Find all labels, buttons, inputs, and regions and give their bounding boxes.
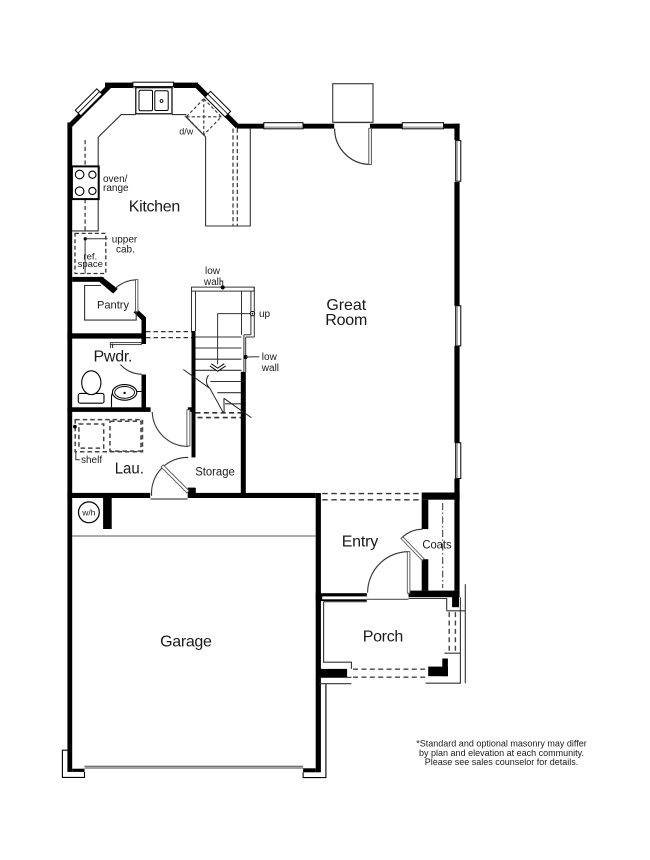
svg-text:w/h: w/h [81, 507, 96, 517]
svg-text:Coats: Coats [422, 538, 451, 552]
svg-text:cab.: cab. [116, 245, 135, 256]
svg-text:low: low [205, 266, 221, 277]
svg-text:space: space [78, 259, 103, 270]
svg-text:up: up [259, 309, 271, 320]
svg-text:Pwdr.: Pwdr. [94, 349, 133, 366]
svg-text:d/w: d/w [179, 127, 194, 137]
svg-text:Porch: Porch [363, 629, 404, 646]
svg-text:Storage: Storage [195, 467, 235, 479]
svg-text:wall: wall [261, 363, 279, 374]
svg-text:Garage: Garage [160, 634, 212, 651]
svg-text:low: low [262, 352, 278, 363]
svg-text:Pantry: Pantry [97, 300, 129, 312]
svg-text:Entry: Entry [342, 534, 379, 551]
svg-text:Kitchen: Kitchen [129, 199, 181, 216]
svg-text:wall: wall [203, 277, 221, 288]
svg-text:Lau.: Lau. [115, 461, 144, 478]
svg-text:Room: Room [325, 312, 367, 329]
svg-text:range: range [103, 183, 129, 194]
svg-text:Please see sales counselor for: Please see sales counselor for details. [425, 757, 579, 767]
svg-text:shelf: shelf [81, 455, 102, 466]
